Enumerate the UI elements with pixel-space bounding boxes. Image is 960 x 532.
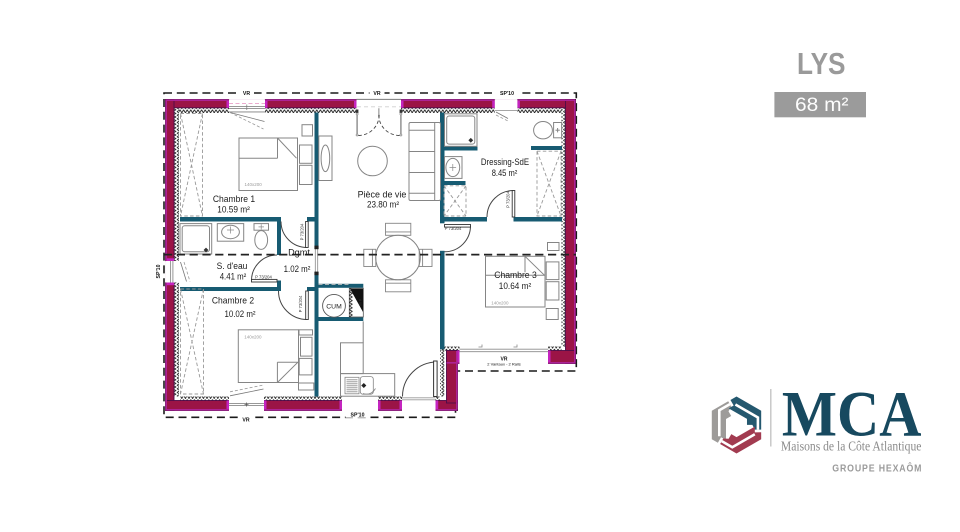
- svg-text:60 F: 60 F: [359, 298, 363, 306]
- svg-text:140x200: 140x200: [245, 182, 263, 187]
- svg-text:Dressing-SdE: Dressing-SdE: [481, 157, 529, 167]
- svg-text:VR: VR: [242, 417, 249, 423]
- svg-text:68 m²: 68 m²: [795, 95, 849, 116]
- svg-text:VR: VR: [243, 91, 250, 97]
- svg-text:1.02 m²: 1.02 m²: [284, 264, 311, 274]
- svg-text:23.80 m²: 23.80 m²: [367, 199, 399, 209]
- svg-text:10.64 m²: 10.64 m²: [499, 281, 531, 291]
- svg-text:LYS: LYS: [797, 46, 846, 81]
- svg-text:10.02 m²: 10.02 m²: [225, 309, 256, 319]
- svg-text:Chambre 3: Chambre 3: [494, 270, 537, 280]
- svg-text:S. d'eau: S. d'eau: [217, 261, 248, 271]
- svg-text:Maisons de la Côte Atlantique: Maisons de la Côte Atlantique: [781, 439, 922, 454]
- svg-text:SP'10: SP'10: [156, 264, 162, 278]
- svg-text:SP'10: SP'10: [500, 91, 514, 97]
- svg-text:Pièce de vie: Pièce de vie: [358, 190, 407, 200]
- svg-text:Chambre 1: Chambre 1: [213, 194, 255, 204]
- svg-text:140x200: 140x200: [244, 335, 262, 340]
- svg-text:Chambre 2: Chambre 2: [212, 296, 254, 306]
- svg-text:P 73/204: P 73/204: [255, 274, 272, 279]
- svg-text:P 73/204: P 73/204: [445, 226, 462, 231]
- svg-text:2 Vantaux - 2 Rails: 2 Vantaux - 2 Rails: [487, 362, 521, 367]
- svg-text:P 73/204: P 73/204: [506, 190, 511, 207]
- svg-text:CUM: CUM: [326, 303, 342, 310]
- svg-text:Dgmt: Dgmt: [288, 248, 310, 258]
- svg-text:8.45 m²: 8.45 m²: [492, 168, 518, 178]
- svg-text:10.59 m²: 10.59 m²: [217, 205, 250, 215]
- svg-text:4.41 m²: 4.41 m²: [220, 272, 247, 282]
- svg-text:GROUPE HEXAÔM: GROUPE HEXAÔM: [832, 462, 922, 475]
- svg-text:140x200: 140x200: [491, 301, 509, 306]
- svg-text:SP'10: SP'10: [351, 413, 365, 419]
- svg-text:P 73/204: P 73/204: [298, 295, 303, 312]
- svg-text:P 73/204: P 73/204: [300, 223, 305, 240]
- svg-text:VR: VR: [373, 91, 380, 97]
